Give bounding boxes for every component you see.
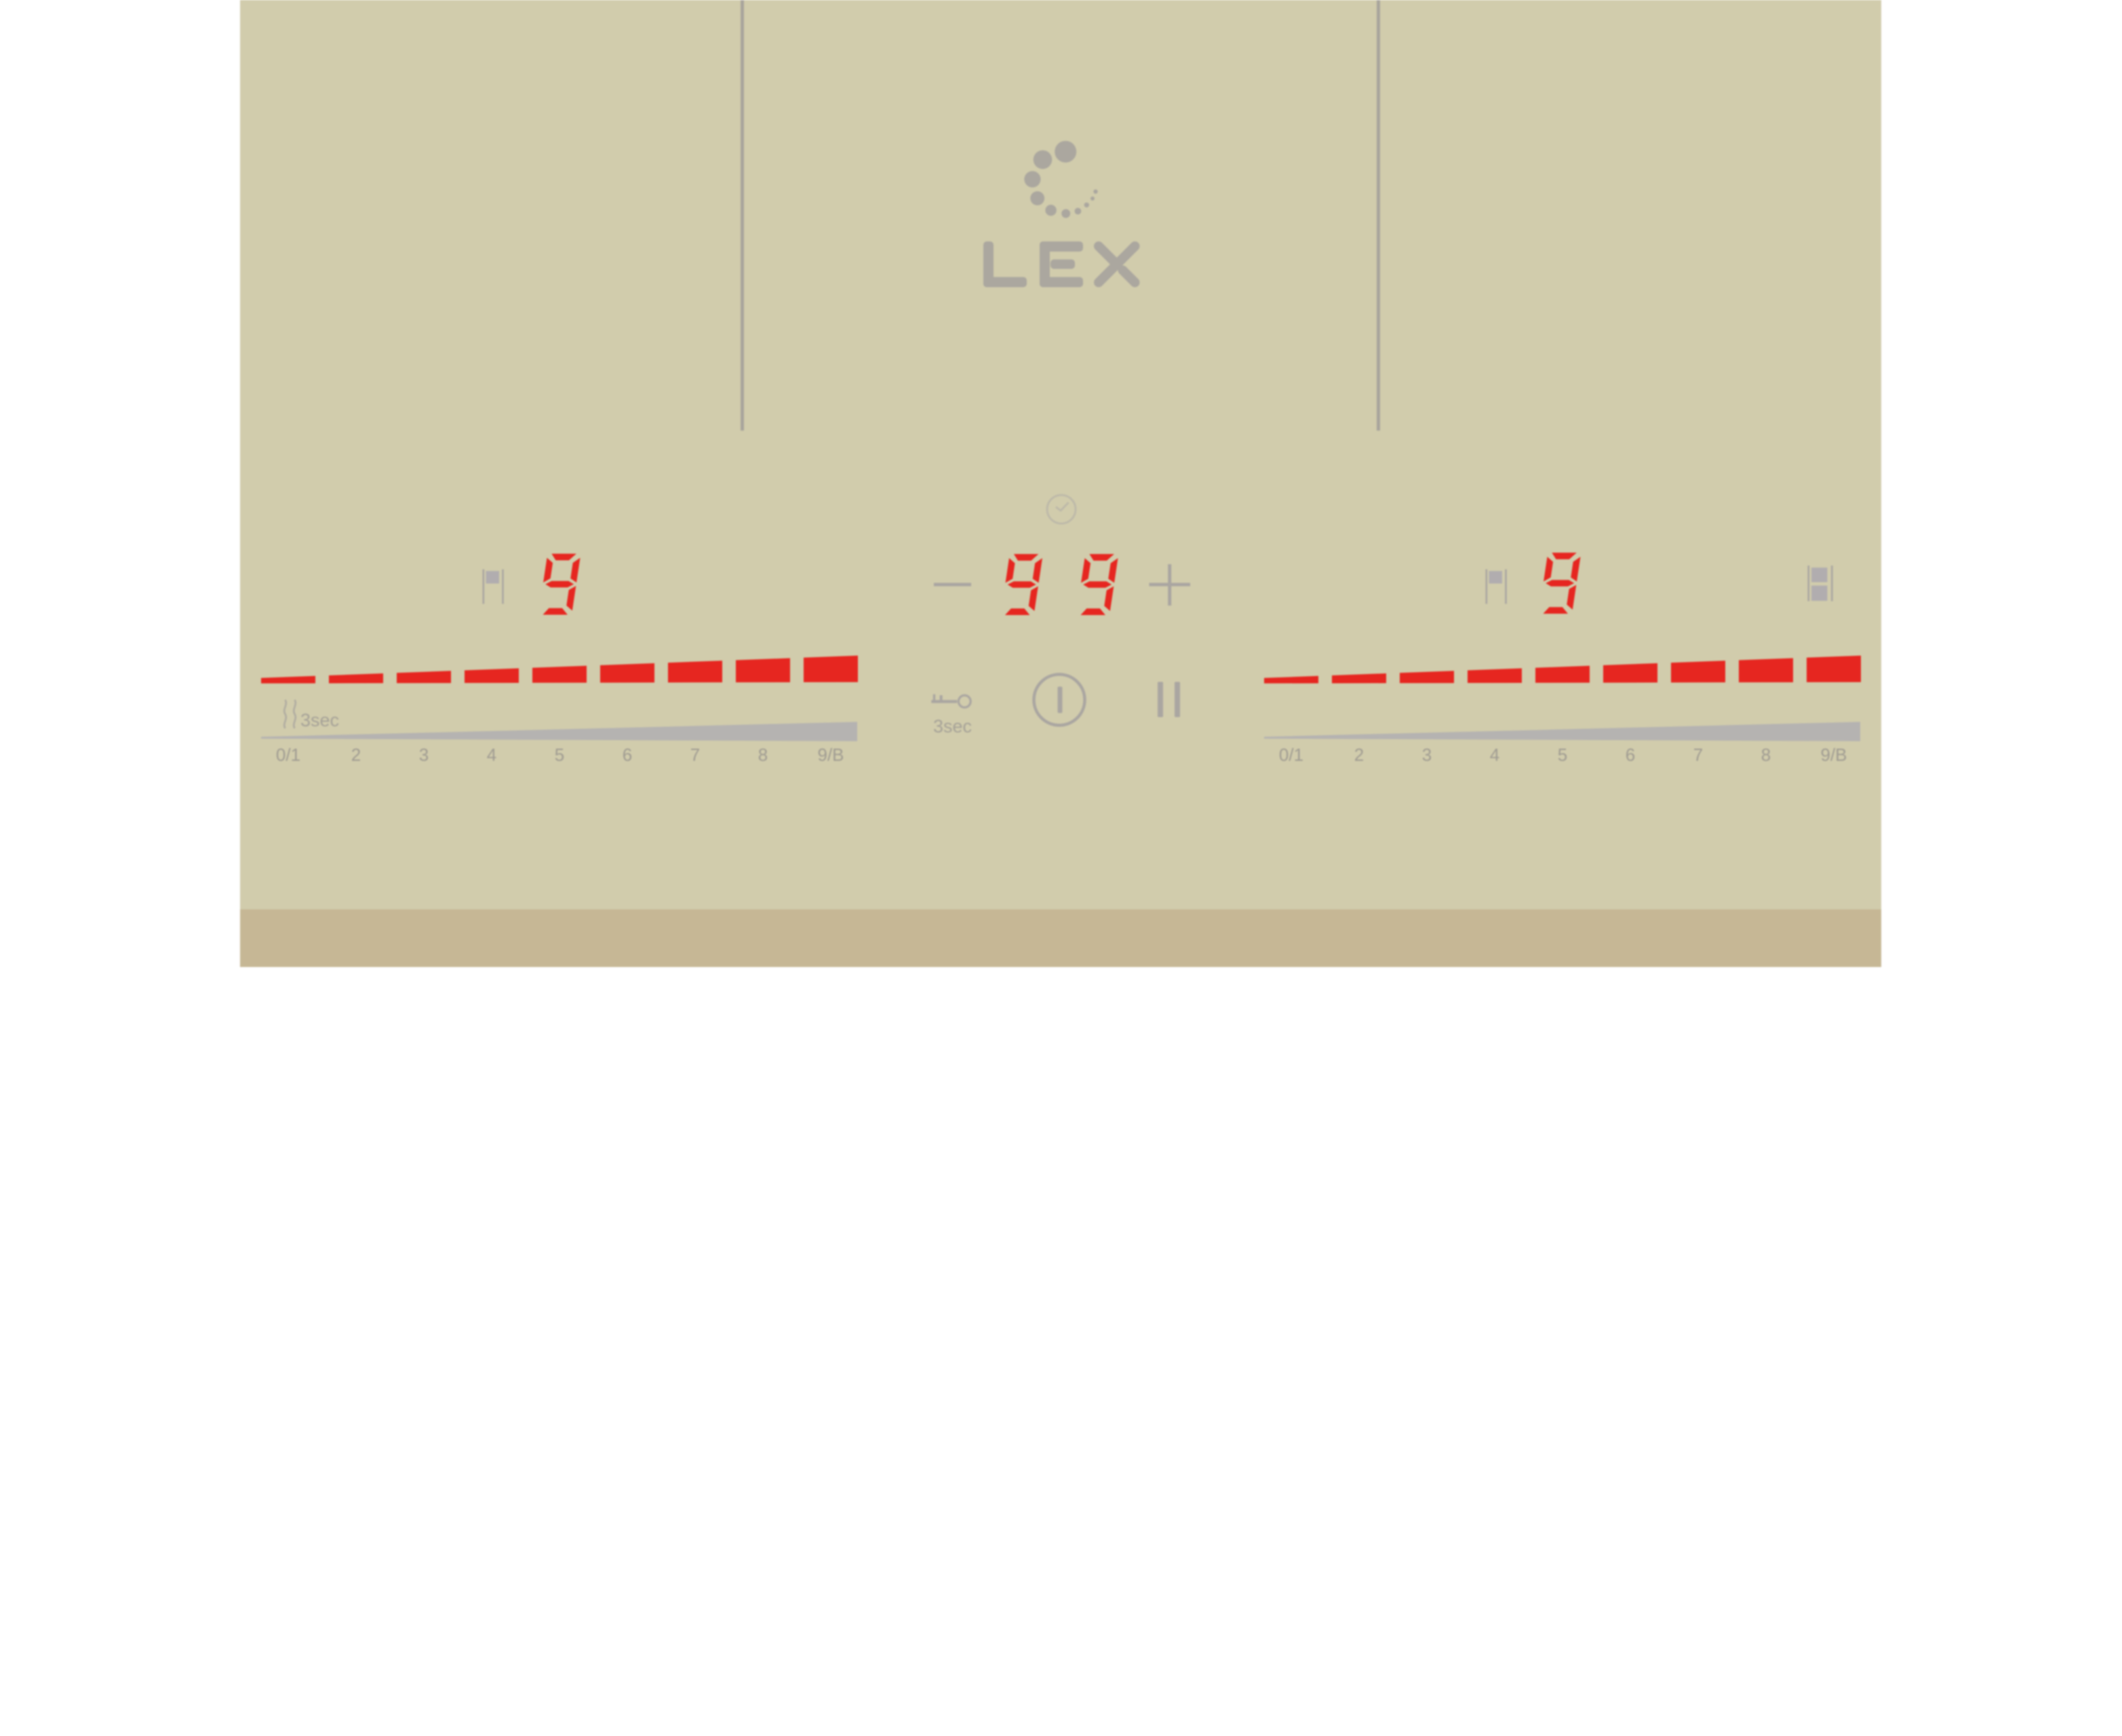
svg-text:8: 8	[1761, 745, 1771, 765]
svg-text:5: 5	[1558, 745, 1567, 765]
svg-text:4: 4	[1490, 745, 1499, 765]
svg-text:6: 6	[1626, 745, 1635, 765]
svg-text:3sec: 3sec	[933, 716, 972, 736]
svg-text:2: 2	[351, 745, 361, 765]
svg-text:2: 2	[1354, 745, 1364, 765]
svg-text:5: 5	[555, 745, 564, 765]
svg-text:9/B: 9/B	[1820, 745, 1847, 765]
svg-text:7: 7	[1693, 745, 1703, 765]
svg-text:7: 7	[690, 745, 700, 765]
svg-text:6: 6	[623, 745, 632, 765]
svg-text:3: 3	[1422, 745, 1432, 765]
svg-text:9/B: 9/B	[817, 745, 844, 765]
svg-text:4: 4	[487, 745, 496, 765]
svg-text:3: 3	[419, 745, 429, 765]
svg-text:8: 8	[758, 745, 768, 765]
svg-text:0/1: 0/1	[276, 745, 300, 765]
svg-text:0/1: 0/1	[1279, 745, 1303, 765]
svg-text:3sec: 3sec	[300, 710, 339, 730]
